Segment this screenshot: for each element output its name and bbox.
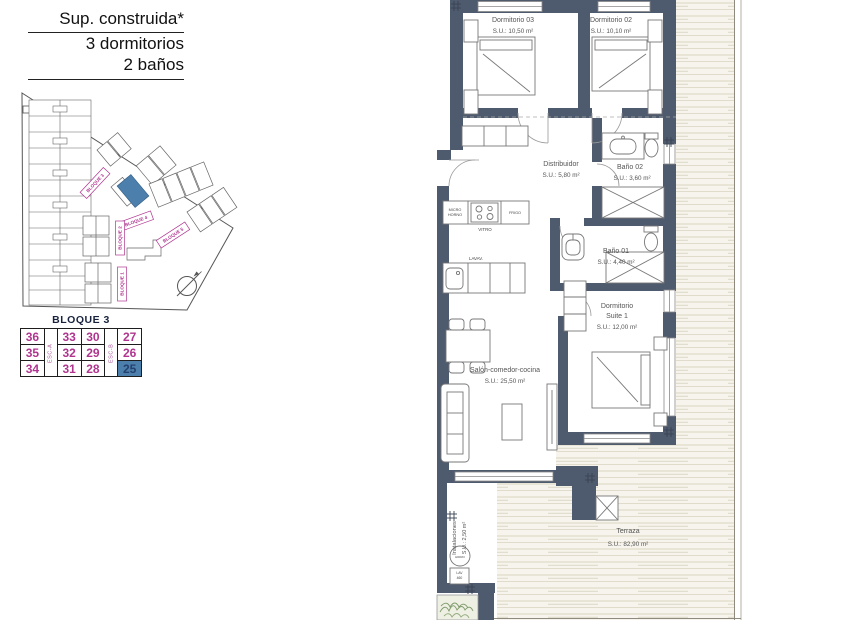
bano01-name: Baño 01: [603, 248, 629, 255]
salon-area: S.U.: 25,50 m²: [485, 378, 526, 385]
bed-icon-dorm03: [477, 37, 535, 95]
frigo-label: FRIGO: [509, 211, 521, 215]
vitro-label: VITRO: [478, 227, 492, 232]
terrace-stair-icon: [596, 496, 618, 520]
planter: [437, 595, 478, 620]
washer-label-2: 460: [457, 576, 463, 580]
salon-name: Salón-comedor-cocina: [470, 367, 540, 374]
tv-unit-icon: [547, 384, 557, 450]
floor-plan: Dormitorio 03 S.U.: 10,50 m² Dormitorio …: [0, 0, 850, 620]
micro-label-1: MICRO: [449, 208, 462, 212]
sofa-icon: [441, 384, 469, 462]
bano02-name: Baño 02: [617, 164, 643, 171]
suite-name-2: Suite 1: [606, 313, 628, 320]
washer-label-1: LAV: [456, 571, 463, 575]
instalaciones-area: S.U.: 2,50 m²: [462, 522, 468, 555]
lavav-label: LAVAV.: [469, 256, 483, 261]
suite-area: S.U.: 12,00 m²: [597, 324, 638, 331]
dorm03-name: Dormitorio 03: [492, 17, 534, 24]
dorm03-area: S.U.: 10,50 m²: [493, 28, 534, 35]
terraza-area: S.U.: 82,90 m²: [608, 541, 649, 548]
distribuidor-name: Distribuidor: [543, 161, 579, 168]
sink-icon-bano01: [562, 234, 584, 260]
bano02-area: S.U.: 3,60 m²: [613, 175, 650, 182]
terraza-name: Terraza: [616, 528, 639, 535]
toilet-icon-bano02: [645, 133, 658, 157]
dorm02-name: Dormitorio 02: [590, 17, 632, 24]
coffee-table-icon: [502, 404, 522, 440]
sink-icon-bano02: [602, 133, 644, 159]
bed-icon-dorm02: [592, 37, 650, 91]
distribuidor-area: S.U.: 5,80 m²: [542, 172, 579, 179]
micro-label-2: HORNO: [448, 213, 462, 217]
suite-name-1: Dormitorio: [601, 303, 633, 310]
bano01-area: S.U.: 4,40 m²: [597, 259, 634, 266]
shower-icon-bano02: [602, 187, 664, 218]
dorm02-area: S.U.: 10,10 m²: [591, 28, 632, 35]
shower-icon-bano01: [606, 252, 664, 283]
instalaciones-name: Instalaciones: [452, 521, 458, 555]
water-heater-label: HIDRO: [455, 555, 465, 559]
kitchen-sink-counter: [443, 263, 525, 293]
toilet-icon-bano01: [644, 226, 658, 251]
